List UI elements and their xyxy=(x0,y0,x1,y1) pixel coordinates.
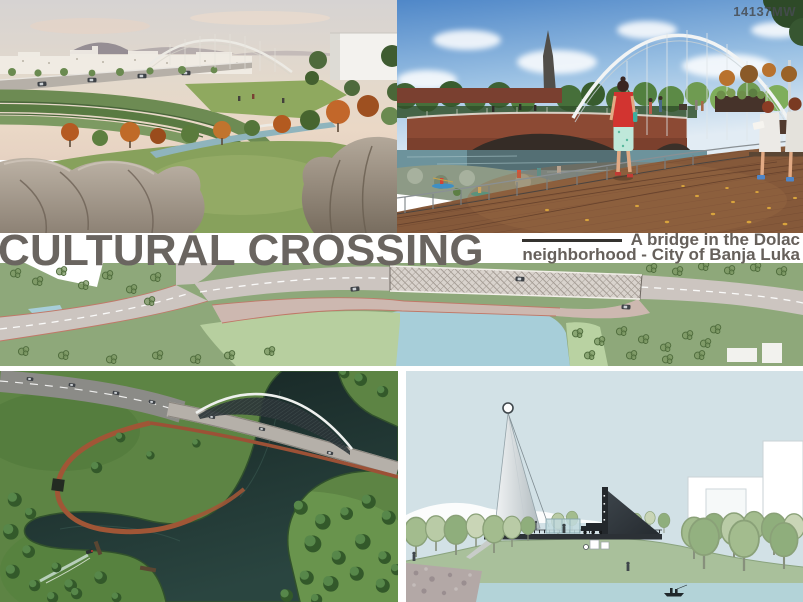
render-park-terraces xyxy=(0,0,397,233)
competition-board: CULTURAL CROSSING A bridge in the Dolac … xyxy=(0,0,803,602)
render-aerial xyxy=(0,371,398,602)
bench xyxy=(749,152,803,157)
subtitle-rule xyxy=(522,239,622,242)
board-title: CULTURAL CROSSING xyxy=(0,229,484,273)
panel-gutter xyxy=(398,366,406,602)
person-silhouette xyxy=(626,562,629,571)
water-bottle xyxy=(633,112,637,122)
pylon-ring xyxy=(503,403,513,413)
glass-pavilion xyxy=(546,519,580,533)
person-silhouette xyxy=(412,552,415,561)
elevation-drawing xyxy=(406,371,803,602)
subtitle-line2: neighborhood - City of Banja Luka xyxy=(522,248,800,263)
board-subtitle: A bridge in the Dolac neighborhood - Cit… xyxy=(522,233,800,262)
stair-block xyxy=(51,478,65,492)
site-plan xyxy=(0,263,803,366)
entry-code: 14137MW xyxy=(733,4,796,19)
tower xyxy=(602,487,608,534)
render-boardwalk xyxy=(397,0,803,233)
